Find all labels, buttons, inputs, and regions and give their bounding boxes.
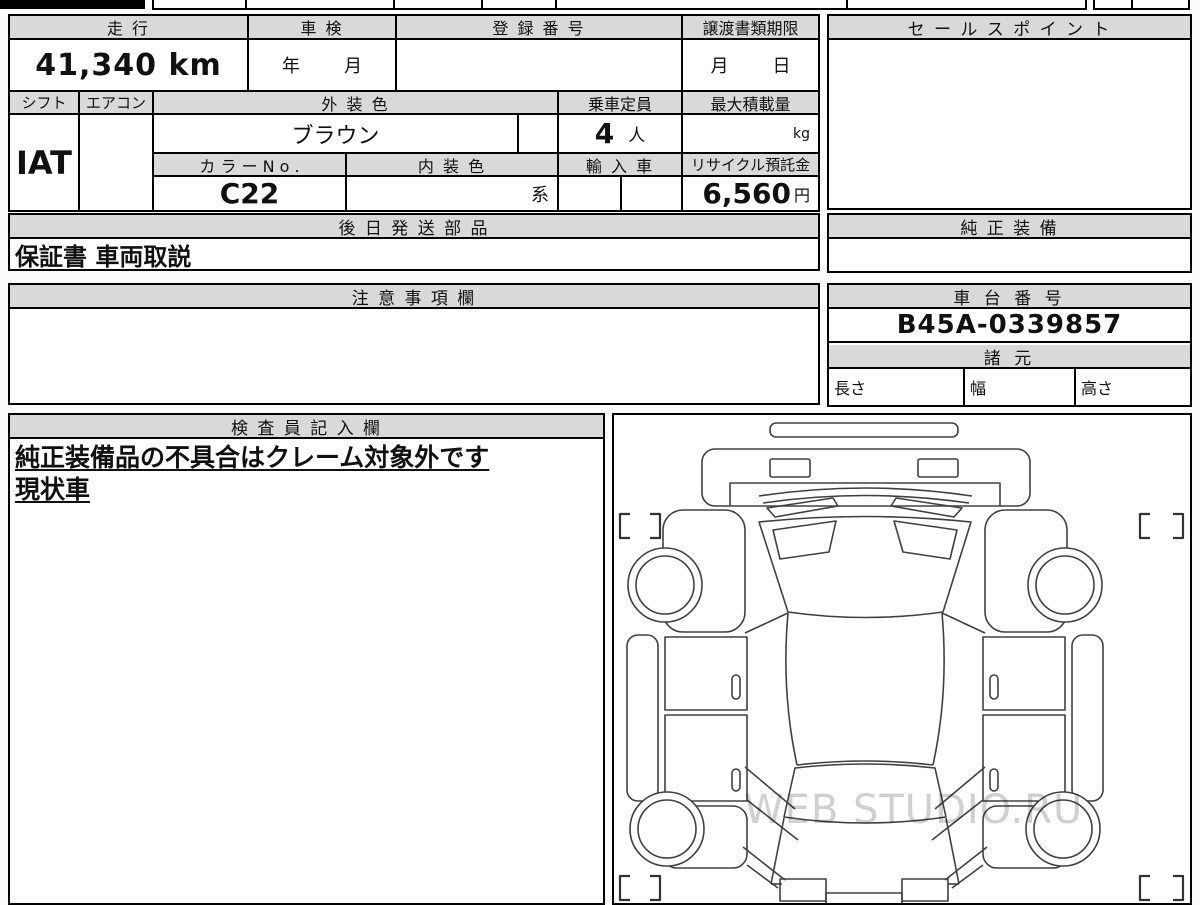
specs-row: 長さ 幅 高さ: [829, 369, 1190, 405]
inspector-note-line1: 純正装備品の不具合はクレーム対象外です: [15, 442, 598, 474]
shift-header: シフト: [10, 92, 78, 113]
genuine-equipment-body: [829, 239, 1190, 271]
aircon-value: [80, 115, 152, 210]
transfer-deadline-header: 譲渡書類期限: [683, 16, 818, 38]
capacity-value: 4 人: [559, 115, 681, 152]
interior-color-header: 内 装 色: [347, 154, 557, 175]
sales-point-header: セ ー ル ス ポ イ ン ト: [829, 16, 1190, 40]
caution-header: 注 意 事 項 欄: [10, 285, 818, 309]
spec-length-label: 長さ: [829, 369, 963, 405]
spec-width-label: 幅: [965, 369, 1074, 405]
vehicle-info-table: 走 行 車 検 登 録 番 号 譲渡書類期限 41,340 km 年 月 月 日…: [8, 14, 820, 212]
transfer-month-label: 月: [711, 52, 729, 78]
specs-header: 諸 元: [829, 345, 1190, 369]
genuine-equipment-header: 純 正 装 備: [829, 215, 1190, 239]
capacity-unit: 人: [628, 121, 645, 146]
spec-height-label: 高さ: [1076, 369, 1190, 405]
transfer-deadline-value: 月 日: [683, 40, 818, 90]
inspection-month-label: 月: [344, 52, 362, 78]
genuine-equipment-section: 純 正 装 備: [827, 213, 1192, 273]
inspector-note-line2: 現状車: [15, 474, 598, 506]
color-no-value: C22: [154, 177, 345, 210]
imported-cell-1: [559, 177, 620, 210]
imported-header: 輸 入 車: [559, 154, 681, 175]
chassis-section: 車 台 番 号 B45A-0339857 諸 元 長さ 幅 高さ: [827, 283, 1192, 407]
chassis-header: 車 台 番 号: [829, 285, 1190, 309]
mileage-value: 41,340 km: [10, 40, 247, 90]
color-no-header: カ ラ ー N o .: [154, 154, 345, 175]
inspection-year-label: 年: [282, 52, 300, 78]
inspection-header: 車 検: [249, 16, 395, 38]
cutoff-row-cell: [1131, 0, 1190, 10]
recycle-unit: 円: [794, 182, 810, 206]
sales-point-section: セ ー ル ス ポ イ ン ト: [827, 14, 1192, 210]
watermark-text: WEB STUDIO.RU: [744, 787, 1083, 833]
capacity-number: 4: [595, 117, 614, 150]
recycle-amount: 6,560: [702, 177, 791, 210]
cutoff-row-cell: [846, 0, 1087, 10]
cutoff-row-cell: [245, 0, 395, 10]
registration-header: 登 録 番 号: [397, 16, 681, 38]
cutoff-row-cell: [555, 0, 848, 10]
exterior-color-value: ブラウン: [154, 115, 517, 152]
later-parts-value: 保証書 車両取説: [10, 239, 818, 269]
interior-color-value: 系: [347, 177, 557, 210]
cutoff-row-cell: [1093, 0, 1133, 10]
recycle-deposit-header: リサイクル預託金: [683, 154, 818, 175]
inspector-section: 検 査 員 記 入 欄 純正装備品の不具合はクレーム対象外です 現状車: [8, 413, 605, 905]
exterior-color-header: 外 装 色: [154, 92, 557, 113]
mileage-header: 走 行: [10, 16, 247, 38]
inspection-value: 年 月: [249, 40, 395, 90]
later-parts-section: 後 日 発 送 部 品 保証書 車両取説: [8, 213, 820, 271]
car-diagram-panel: WEB STUDIO.RU: [612, 413, 1192, 905]
cutoff-row-cell: [393, 0, 483, 10]
inspector-header: 検 査 員 記 入 欄: [10, 415, 603, 439]
caution-section: 注 意 事 項 欄: [8, 283, 820, 405]
sales-point-body: [829, 40, 1190, 208]
inspector-notes: 純正装備品の不具合はクレーム対象外です 現状車: [10, 439, 603, 509]
exterior-color-extra-cell: [519, 115, 557, 152]
caution-body: [10, 309, 818, 403]
aircon-header: エアコン: [80, 92, 152, 113]
transfer-day-label: 日: [773, 52, 791, 78]
registration-value: [397, 40, 681, 90]
shift-value: IAT: [10, 115, 78, 210]
cutoff-row-cell: [481, 0, 557, 10]
capacity-header: 乗車定員: [559, 92, 681, 113]
max-load-value: kg: [683, 115, 818, 152]
chassis-number: B45A-0339857: [829, 309, 1190, 343]
cutoff-row-cell: [152, 0, 247, 10]
later-parts-header: 後 日 発 送 部 品: [10, 215, 818, 239]
max-load-header: 最大積載量: [683, 92, 818, 113]
top-black-bar: [0, 0, 145, 9]
recycle-deposit-value: 6,560 円: [683, 177, 818, 210]
imported-cell-2: [622, 177, 681, 210]
